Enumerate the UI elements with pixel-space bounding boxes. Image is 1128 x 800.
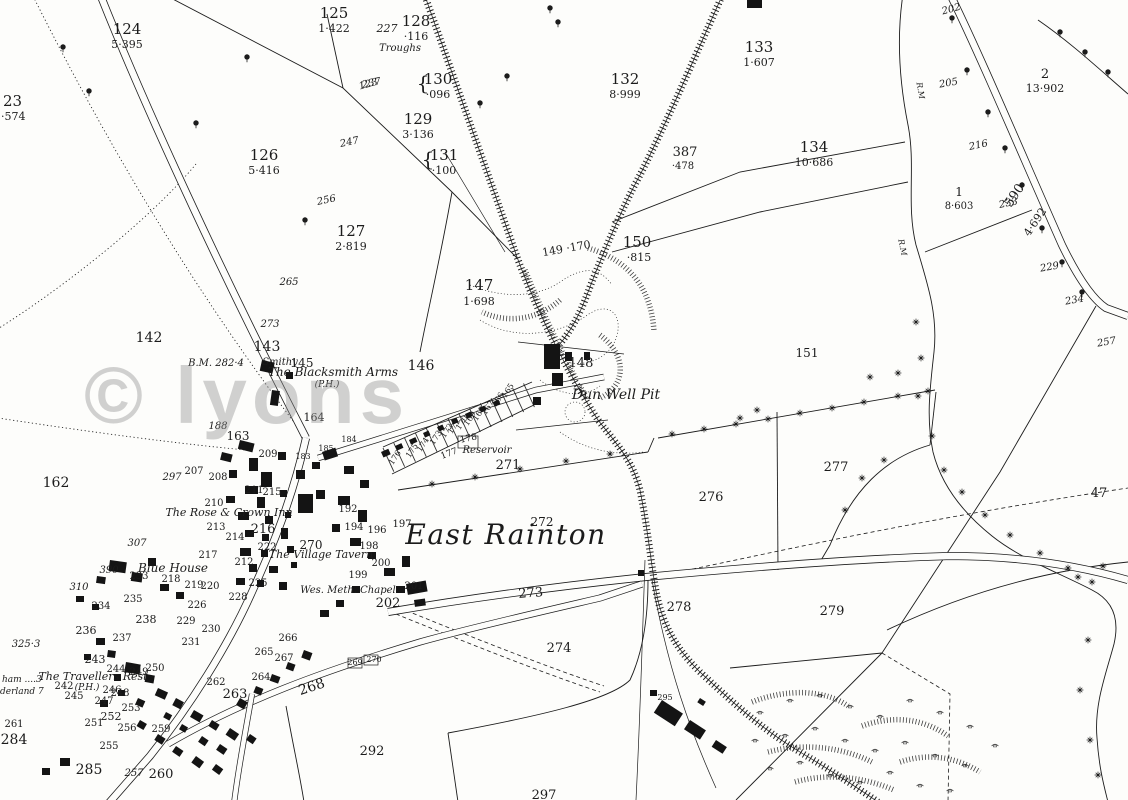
map-label: 23 (3, 92, 22, 110)
marsh-tufts (797, 761, 804, 764)
buildings (747, 0, 762, 8)
map-label: 220 (200, 581, 219, 592)
buildings (301, 650, 312, 661)
map-label: 124 (113, 20, 142, 38)
buildings (190, 710, 204, 722)
map-label: 130 (424, 70, 453, 88)
slope-hachures (768, 747, 872, 762)
hedgerow-trees (737, 415, 744, 422)
map-label: 234 (1063, 293, 1085, 307)
map-label: 128 (402, 12, 431, 30)
field-boundaries (0, 0, 1128, 800)
map-label: 226 (187, 600, 206, 611)
hedgerow-trees (982, 512, 989, 519)
hedgerow-trees (842, 507, 849, 514)
buildings (96, 576, 106, 584)
map-label: 47 (1091, 486, 1108, 501)
slope-hachures (900, 757, 980, 772)
map-label: 8·999 (609, 88, 641, 101)
hedgerow-trees (477, 100, 482, 108)
map-label: 10·686 (795, 156, 834, 169)
map-label: 196 (367, 525, 386, 536)
map-label: 4·692 (1021, 205, 1049, 238)
hedgerow-trees (1037, 550, 1044, 557)
map-label: 133 (745, 38, 774, 56)
hedgerow-trees (1059, 259, 1064, 267)
marsh-tufts (967, 725, 974, 728)
buildings (697, 698, 706, 706)
field-boundaries (0, 164, 196, 330)
map-label: ·478 (672, 161, 694, 172)
buildings (107, 650, 116, 658)
map-label: 129 (404, 110, 433, 128)
map-label: 257 (1095, 335, 1117, 349)
hedgerow-trees (913, 319, 920, 326)
map-label: 265 (278, 277, 298, 288)
map-label: 325·3 (12, 639, 41, 650)
field-boundaries (612, 142, 905, 222)
buildings (654, 700, 683, 726)
railway (560, 0, 722, 344)
buildings (226, 496, 235, 503)
map-label: R.M (914, 81, 926, 101)
slope-hachures (862, 720, 948, 736)
map-label: 217 (198, 550, 217, 561)
hedgerow-trees (555, 19, 560, 27)
field-boundaries (648, 438, 654, 452)
buildings (316, 490, 325, 499)
buildings (163, 712, 172, 721)
marsh-tufts (907, 699, 914, 702)
map-label: 148 (569, 356, 594, 371)
map-label: 260 (149, 767, 174, 782)
map-label: 262 (206, 677, 225, 688)
map-label: 285 (76, 762, 103, 778)
map-label: 227 (376, 22, 398, 35)
buildings (60, 758, 70, 766)
hedgerow-trees (1007, 532, 1014, 539)
map-label: 307 (127, 538, 147, 549)
buildings (650, 690, 657, 696)
map-label: 247 (338, 135, 361, 150)
map-label: 231 (181, 637, 200, 648)
map-label: ·815 (627, 251, 652, 264)
hedgerow-trees (1057, 29, 1062, 37)
map-label: 263 (223, 687, 248, 702)
hedgerow-trees (472, 474, 479, 481)
map-label: 238 (136, 613, 157, 626)
hedgerow-trees (918, 355, 925, 362)
map-label: ·096 (426, 88, 451, 101)
map-label: 188 (208, 421, 227, 432)
buildings (96, 638, 105, 645)
roads (950, 0, 1128, 316)
field-boundaries (448, 733, 458, 800)
field-boundaries (33, 0, 306, 438)
map-label: 252 (101, 710, 122, 723)
map-label: 194 (344, 522, 363, 533)
hedgerow-trees (754, 407, 761, 414)
map-label: 211 (244, 485, 263, 496)
map-label: 202 (376, 596, 401, 611)
buildings (544, 344, 560, 369)
map-label: 229 (1038, 260, 1060, 274)
map-label: 297 (161, 472, 182, 483)
map-label: 201 (404, 581, 423, 592)
map-label: Reservoir (462, 445, 513, 456)
map-label: 5·395 (111, 38, 143, 51)
map-label: ham ....3 (2, 675, 42, 685)
map-screenshot: 1245·3951251·422128·11623·574{130·096129… (0, 0, 1128, 800)
marsh-tufts (817, 694, 824, 697)
map-label: 250 (145, 663, 164, 674)
marsh-tufts (902, 741, 909, 744)
buildings (269, 566, 278, 573)
hedgerow-trees (1089, 579, 1096, 586)
marsh-tufts (937, 711, 944, 714)
map-label: 273 (259, 319, 279, 330)
map-label: 150 (623, 233, 652, 251)
field-boundaries (925, 210, 1032, 252)
map-label: 183 (295, 452, 310, 461)
buildings (270, 674, 281, 684)
buildings (312, 462, 320, 469)
map-label: 234 (91, 601, 110, 612)
hedgerow-trees (881, 457, 888, 464)
map-label: 142 (136, 330, 163, 346)
map-label: 257 (123, 768, 144, 779)
hedgerow-trees (1087, 737, 1094, 744)
field-boundaries (777, 412, 778, 570)
map-label: 229 (176, 616, 195, 627)
hedgerow-trees (302, 217, 307, 225)
map-label: 273 (518, 585, 544, 602)
map-label: 184 (341, 435, 356, 444)
map-label: 132 (611, 70, 640, 88)
map-label: The Rose & Crown Inn (165, 506, 292, 519)
map-label: 277 (824, 460, 849, 475)
map-label: ·100 (432, 164, 457, 177)
map-label: 259 (151, 724, 170, 735)
hedgerow-trees (861, 399, 868, 406)
map-label: Troughs (379, 43, 421, 54)
hedgerow-trees (964, 67, 969, 75)
map-label: 215 (262, 487, 281, 498)
map-label: 237 (112, 633, 131, 644)
hedgerow-trees (941, 467, 948, 474)
marsh-tufts (932, 754, 939, 757)
map-label: 265 (254, 647, 273, 658)
map-label: 264 (251, 672, 270, 683)
map-label: 390 (99, 565, 119, 576)
buildings (298, 494, 313, 513)
buildings (281, 528, 288, 539)
map-label: 123 (358, 77, 379, 93)
map-label: 147 (465, 276, 494, 294)
hedgerow-trees (867, 374, 874, 381)
map-label: 256 (117, 723, 136, 734)
marsh-tufts (992, 744, 999, 747)
field-boundaries (658, 390, 935, 438)
buildings (160, 584, 169, 591)
map-label: 208 (208, 472, 227, 483)
map-label: 213 (206, 522, 225, 533)
hedgerow-trees (959, 489, 966, 496)
buildings (216, 744, 227, 755)
field-boundaries (882, 306, 1096, 653)
buildings (336, 600, 344, 607)
hedgerow-trees (563, 458, 570, 465)
map-label: The Village Tavern (269, 548, 373, 561)
map-label: 256 (315, 193, 338, 208)
map-label: 1·607 (743, 56, 775, 69)
map-label: 270 (366, 655, 381, 664)
field-boundaries (612, 182, 908, 252)
buildings (220, 452, 233, 462)
map-label: 274 (547, 641, 572, 656)
marsh-tufts (752, 739, 759, 742)
map-label: 279 (820, 604, 845, 619)
buildings (638, 570, 644, 576)
map-label: 1·422 (318, 22, 350, 35)
map-label: 261 (4, 719, 23, 730)
hedgerow-trees (733, 421, 740, 428)
map-label: 149 ·170 (541, 238, 591, 259)
map-label: 185 (318, 444, 333, 453)
buildings (240, 548, 251, 556)
map-label: 164 (304, 411, 325, 424)
hedgerow-trees (895, 370, 902, 377)
map-label: B.M. 282·4 (187, 358, 244, 369)
map-label: 269 (347, 658, 362, 667)
map-label: 205 (937, 76, 959, 90)
hedgerow-trees (895, 393, 902, 400)
map-label: ·116 (404, 30, 429, 43)
map-label: 1 (955, 185, 963, 199)
hedgerow-trees (1100, 563, 1107, 570)
marsh-tufts (872, 749, 879, 752)
hedgerow-trees (429, 481, 436, 488)
map-label: 292 (360, 744, 385, 759)
map-label: 225 (248, 578, 267, 589)
marsh-tufts (917, 784, 924, 787)
map-labels: 1245·3951251·422128·11623·574{130·096129… (0, 2, 1118, 800)
map-label: 228 (228, 592, 247, 603)
buildings (42, 768, 50, 775)
marsh-tufts (757, 711, 764, 714)
field-boundaries (882, 653, 950, 800)
buildings (198, 736, 209, 746)
hedgerow-trees (985, 109, 990, 117)
hedgerow-trees (1085, 637, 1092, 644)
slope-hachures (752, 693, 848, 706)
map-label: 284 (1, 732, 28, 748)
map-label: 278 (667, 600, 692, 615)
map-canvas: 1245·3951251·422128·11623·574{130·096129… (0, 0, 1128, 800)
marsh-tufts (947, 789, 954, 792)
map-label: 126 (250, 146, 279, 164)
buildings (155, 688, 168, 700)
marsh-tufts (782, 734, 789, 737)
map-label: 13·902 (1026, 82, 1065, 95)
map-label: 310 (69, 582, 89, 593)
buildings (344, 466, 354, 474)
map-label: 146 (408, 358, 435, 374)
map-label: The Blacksmith Arms (268, 365, 398, 379)
map-label: 2 (1041, 67, 1049, 82)
map-label: 266 (278, 633, 297, 644)
buildings (176, 592, 184, 599)
field-boundaries (730, 653, 882, 668)
roads (388, 556, 1128, 612)
buildings (172, 746, 183, 757)
buildings (358, 510, 367, 522)
map-label: 253 (121, 703, 140, 714)
buildings (384, 568, 395, 576)
field-boundaries (420, 192, 452, 352)
map-label: 2·819 (335, 240, 367, 253)
buildings (191, 756, 204, 768)
buildings (76, 596, 84, 602)
hedgerow-trees (547, 5, 552, 13)
map-label: The Travellers Rest (38, 670, 148, 683)
buildings (552, 373, 563, 386)
hedgerow-trees (859, 475, 866, 482)
map-label: R.M (896, 237, 909, 257)
map-label: 236 (76, 624, 97, 637)
marsh-tufts (812, 727, 819, 730)
map-label: 267 (274, 653, 293, 664)
map-label: 209 (258, 449, 277, 460)
hedgerow-trees (765, 416, 772, 423)
buildings (137, 720, 147, 730)
buildings (533, 397, 541, 405)
buildings (291, 562, 297, 568)
railway (636, 560, 645, 800)
map-label: 127 (337, 222, 366, 240)
map-label: 8·603 (945, 201, 974, 212)
map-label: 1·698 (463, 295, 495, 308)
map-label: 125 (320, 4, 349, 22)
map-label: 174 (415, 436, 431, 454)
map-label: 387 (673, 145, 698, 160)
hedgerow-trees (193, 120, 198, 128)
hedgerow-trees (949, 15, 954, 23)
buildings (360, 480, 369, 488)
marsh-tufts (787, 699, 794, 702)
buildings (249, 458, 258, 471)
pit-workings (565, 402, 585, 422)
buildings (279, 582, 287, 590)
hedgerow-trees (929, 433, 936, 440)
buildings (278, 452, 286, 460)
buildings (226, 728, 240, 741)
marsh-tufts (877, 715, 884, 718)
map-label: 216 (251, 522, 276, 537)
hedgerow-trees (1075, 574, 1082, 581)
field-boundaries (167, 0, 517, 258)
map-label: 243 (85, 653, 106, 666)
hedgerow-trees (1105, 69, 1110, 77)
buildings (684, 720, 706, 740)
map-label: (P.H.) (75, 682, 100, 693)
map-label: 199 (348, 570, 367, 581)
hedgerow-trees (504, 73, 509, 81)
map-label: 230 (201, 624, 220, 635)
buildings (229, 470, 237, 478)
map-label: 207 (184, 466, 203, 477)
hedgerow-trees (1082, 49, 1087, 57)
map-label: 134 (800, 138, 829, 156)
hedgerow-trees (1002, 145, 1007, 153)
map-label: 271 (496, 458, 521, 473)
map-label: Wes. Meth. Chapel (300, 585, 395, 596)
hedgerow-trees (1095, 772, 1102, 779)
hedgerow-trees (86, 88, 91, 96)
map-label: Dun Well Pit (571, 387, 661, 403)
map-label: 212 (234, 557, 253, 568)
map-label: (P.H.) (315, 379, 340, 390)
map-label: 255 (99, 741, 118, 752)
map-label: 192 (338, 504, 357, 515)
marsh-tufts (842, 739, 849, 742)
map-label: derland 7 (0, 687, 44, 697)
map-label: 248 (110, 688, 129, 699)
hedgerow-trees (1077, 687, 1084, 694)
buildings (402, 556, 410, 567)
field-boundaries (286, 706, 304, 800)
buildings (296, 470, 305, 479)
map-label: 163 (227, 429, 250, 443)
map-label: 200 (371, 558, 390, 569)
map-label: 235 (123, 594, 142, 605)
map-label: 143 (254, 339, 281, 355)
map-label: 3·136 (402, 128, 434, 141)
hedgerow-trees (244, 54, 249, 62)
buildings (320, 610, 329, 617)
map-label: 218 (161, 574, 180, 585)
pit-workings (560, 432, 644, 453)
hedgerow-trees (797, 410, 804, 417)
field-boundaries (398, 452, 648, 490)
map-label: 295 (657, 693, 672, 702)
buildings (712, 740, 727, 754)
map-label: 214 (225, 532, 244, 543)
buildings (236, 578, 245, 585)
map-label: 131 (430, 146, 459, 164)
map-label: 590· (1002, 178, 1031, 210)
map-label: 276 (699, 490, 724, 505)
hedgerow-trees (1039, 225, 1044, 233)
map-label: 162 (43, 475, 70, 491)
map-label: 297 (532, 788, 557, 800)
map-label: 5·416 (248, 164, 280, 177)
map-label: 177 (440, 446, 460, 461)
map-label: 178 (459, 432, 478, 445)
map-label: 151 (796, 346, 819, 360)
buildings (332, 524, 340, 532)
map-label: 216 (967, 138, 990, 153)
hedgerow-trees (829, 405, 836, 412)
map-label: East Rainton (404, 518, 606, 551)
buildings (212, 764, 223, 775)
marsh-tufts (887, 771, 894, 774)
buildings (270, 390, 280, 406)
field-boundaries (448, 580, 648, 733)
hedgerow-trees (701, 426, 708, 433)
map-label: ·574 (1, 110, 26, 123)
map-label: Blue House (137, 561, 208, 575)
